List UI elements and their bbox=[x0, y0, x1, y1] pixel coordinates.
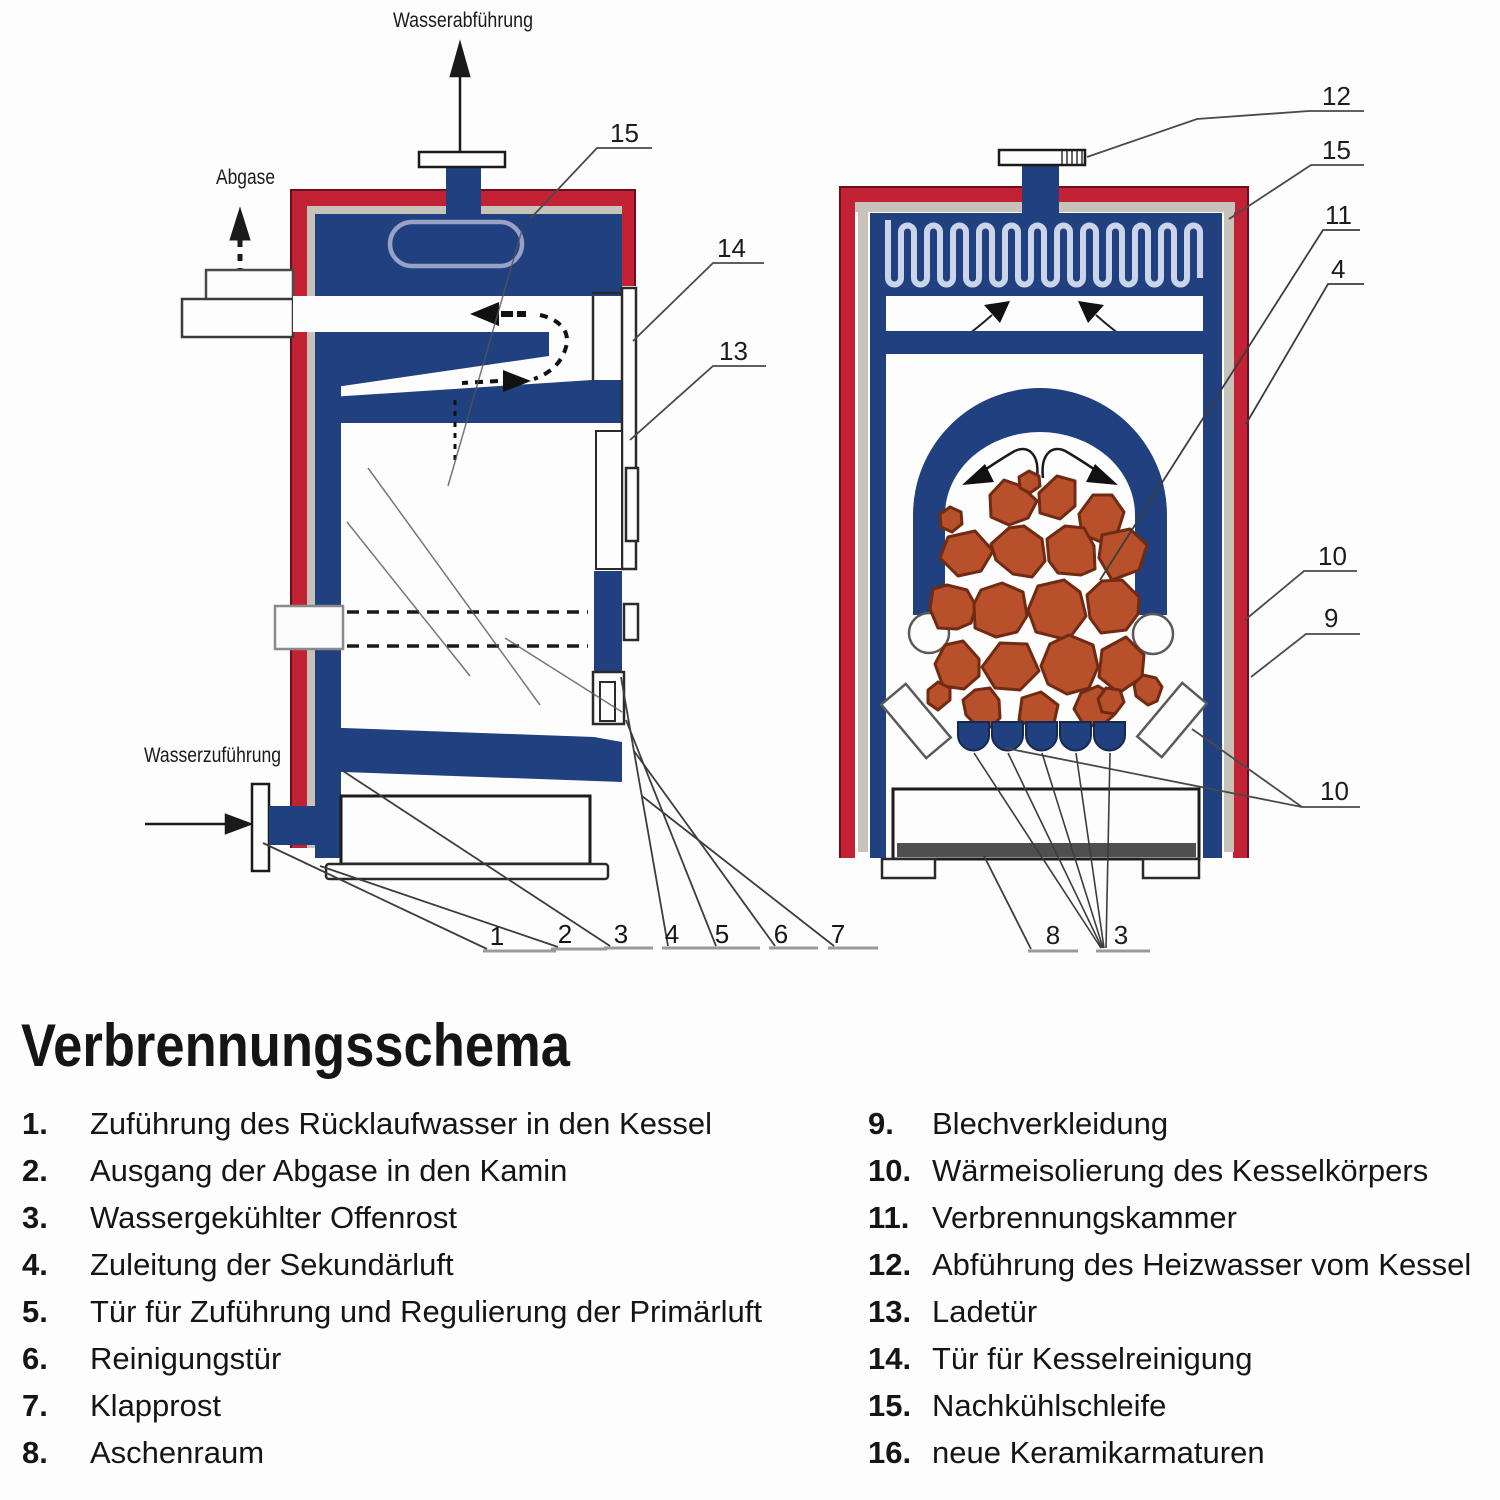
svg-text:1.: 1. bbox=[22, 1106, 48, 1141]
svg-text:11: 11 bbox=[1325, 200, 1352, 230]
svg-text:Klapprost: Klapprost bbox=[90, 1388, 221, 1423]
svg-text:Ladetür: Ladetür bbox=[932, 1294, 1037, 1329]
svg-text:12.: 12. bbox=[868, 1247, 911, 1282]
svg-text:14: 14 bbox=[717, 233, 746, 263]
svg-text:4: 4 bbox=[665, 919, 679, 949]
svg-text:Abgase: Abgase bbox=[216, 166, 275, 189]
svg-text:13.: 13. bbox=[868, 1294, 911, 1329]
svg-text:Wasserabführung: Wasserabführung bbox=[393, 9, 533, 32]
svg-text:8: 8 bbox=[1046, 920, 1060, 950]
svg-text:6.: 6. bbox=[22, 1341, 48, 1376]
svg-text:Wasserzuführung: Wasserzuführung bbox=[144, 744, 281, 767]
svg-text:Blechverkleidung: Blechverkleidung bbox=[932, 1106, 1168, 1141]
svg-text:Tür für Zuführung und Regulier: Tür für Zuführung und Regulierung der Pr… bbox=[90, 1294, 762, 1329]
svg-text:13: 13 bbox=[719, 336, 748, 366]
svg-text:Tür für Kesselreinigung: Tür für Kesselreinigung bbox=[932, 1341, 1253, 1376]
svg-text:12: 12 bbox=[1322, 81, 1351, 111]
svg-text:4: 4 bbox=[1331, 254, 1345, 284]
svg-text:7: 7 bbox=[831, 919, 845, 949]
svg-text:11.: 11. bbox=[868, 1200, 909, 1235]
svg-text:Abführung des Heizwasser vom K: Abführung des Heizwasser vom Kessel bbox=[932, 1247, 1471, 1282]
svg-text:6: 6 bbox=[774, 919, 788, 949]
svg-text:7.: 7. bbox=[22, 1388, 48, 1423]
svg-text:9: 9 bbox=[1324, 603, 1338, 633]
svg-text:Ausgang der Abgase in den Kami: Ausgang der Abgase in den Kamin bbox=[90, 1153, 567, 1188]
svg-text:neue Keramikarmaturen: neue Keramikarmaturen bbox=[932, 1435, 1265, 1470]
svg-text:1: 1 bbox=[490, 921, 504, 951]
svg-text:3: 3 bbox=[614, 919, 628, 949]
svg-text:Wassergekühlter Offenrost: Wassergekühlter Offenrost bbox=[90, 1200, 457, 1235]
svg-text:2.: 2. bbox=[22, 1153, 48, 1188]
svg-text:14.: 14. bbox=[868, 1341, 911, 1376]
svg-text:Verbrennungsschema: Verbrennungsschema bbox=[21, 1012, 571, 1079]
svg-text:15.: 15. bbox=[868, 1388, 911, 1423]
svg-text:Wärmeisolierung des Kesselkörp: Wärmeisolierung des Kesselkörpers bbox=[932, 1153, 1428, 1188]
svg-text:15: 15 bbox=[610, 118, 639, 148]
svg-text:4.: 4. bbox=[22, 1247, 48, 1282]
svg-text:5: 5 bbox=[715, 919, 729, 949]
svg-text:10: 10 bbox=[1320, 776, 1349, 806]
svg-text:8.: 8. bbox=[22, 1435, 48, 1470]
svg-text:3: 3 bbox=[1114, 920, 1128, 950]
svg-text:5.: 5. bbox=[22, 1294, 48, 1329]
svg-text:10: 10 bbox=[1318, 541, 1347, 571]
svg-text:15: 15 bbox=[1322, 135, 1351, 165]
svg-text:Zuleitung der Sekundärluft: Zuleitung der Sekundärluft bbox=[90, 1247, 454, 1282]
svg-text:3.: 3. bbox=[22, 1200, 48, 1235]
svg-text:9.: 9. bbox=[868, 1106, 894, 1141]
svg-text:Verbrennungskammer: Verbrennungskammer bbox=[932, 1200, 1237, 1235]
svg-text:10.: 10. bbox=[868, 1153, 911, 1188]
svg-text:16.: 16. bbox=[868, 1435, 911, 1470]
svg-text:2: 2 bbox=[558, 919, 572, 949]
svg-text:Nachkühlschleife: Nachkühlschleife bbox=[932, 1388, 1166, 1423]
svg-text:Aschenraum: Aschenraum bbox=[90, 1435, 264, 1470]
svg-text:Reinigungstür: Reinigungstür bbox=[90, 1341, 281, 1376]
svg-text:Zuführung des Rücklaufwasser i: Zuführung des Rücklaufwasser in den Kess… bbox=[90, 1106, 712, 1141]
